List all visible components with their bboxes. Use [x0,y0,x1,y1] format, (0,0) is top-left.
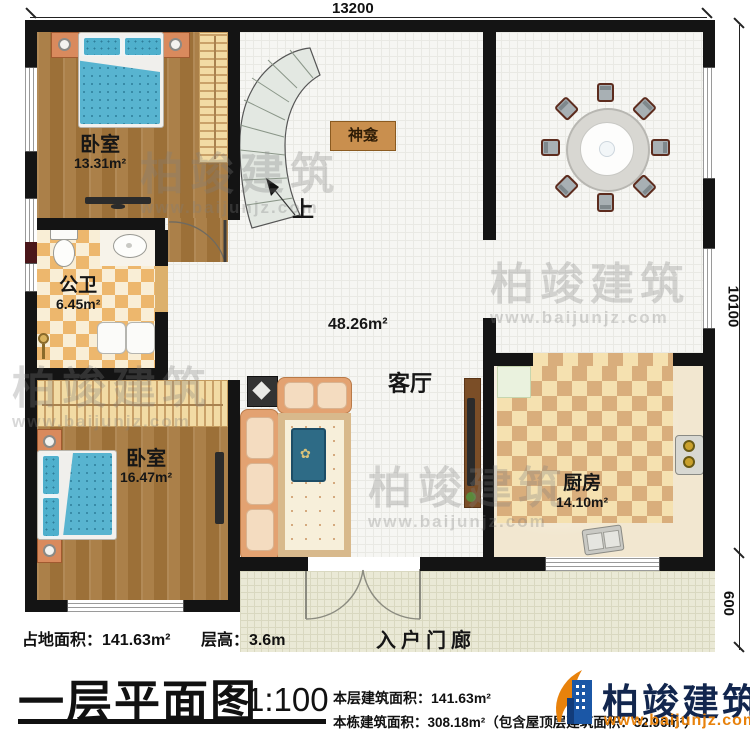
living-area: 48.26m² [328,316,388,334]
nightstand [162,32,190,58]
stove [675,435,704,475]
pillow [41,496,61,538]
wall-living-bottom-a [228,557,308,571]
wardrobe [199,32,228,163]
wall-dining-left-upper [483,32,496,240]
nightstand [37,538,62,563]
cutting-board [497,366,531,398]
stairs-up-label: 上 [292,198,314,222]
dining-chair [651,139,670,156]
kitchen-door-opening-floor [533,353,673,366]
shower-head [38,333,49,344]
living-name: 客厅 [388,372,432,396]
wall-kitchen-top-b [673,353,715,366]
wall-top [25,20,715,32]
wardrobe-rod [214,36,216,160]
dimension-right-upper: 10100 [724,286,741,328]
floor-area-line: 本层建筑面积：141.63m² [333,688,491,708]
bathroom-sink-drain [126,243,132,248]
sofa-top [277,377,352,414]
flowers-icon: ✿ [300,446,311,462]
dimension-top-line [30,17,707,18]
burner-icon [683,440,695,452]
window-bedroom1-left [25,67,37,152]
tv [467,398,475,486]
plant-icon [466,492,476,502]
entry-double-door [303,569,423,627]
window-kitchen-bottom [545,557,660,571]
nightstand [51,32,79,58]
floor-plan-page: 上 神龛 卧室 13.31m² 公卫 6.45m [0,0,750,740]
bathroom-door [155,266,168,312]
window-hall-right [703,248,715,329]
tv-cabinet [85,197,151,204]
window-bedroom2-bottom [67,600,184,612]
bathroom-area: 6.45m² [56,297,100,312]
shower-stem [42,344,45,359]
kitchen-sink [581,524,624,555]
wall-pier-dark [25,242,37,263]
wall-bathroom-bottom [37,368,168,380]
bedroom2-label: 卧室 16.47m² [120,448,172,485]
dimension-right-lower-line [739,557,740,650]
wall-kitchen-left [483,366,494,557]
wall-bedroom2-right [228,380,240,612]
window-dining-right [703,67,715,179]
sofa-left [240,409,279,561]
dining-chair [597,193,614,212]
dining-chair [597,83,614,102]
tv [111,204,125,209]
washing-machine [126,322,155,354]
bedroom1-label: 卧室 13.31m² [74,134,126,171]
wall-kitchen-top-a [494,353,533,366]
washing-machine [97,322,126,354]
kitchen-area: 14.10m² [556,495,608,510]
shrine-label: 神龛 [348,128,378,145]
porch-label: 入户门廊 [376,630,476,652]
floor-height: 层高：3.6m [201,632,285,649]
wall-bedroom1-right [228,32,240,220]
tv [215,452,224,524]
plan-scale: 1:100 [246,681,329,719]
bedroom1-area: 13.31m² [74,156,126,171]
land-area: 占地面积：141.63m² [22,632,171,649]
window-bathroom-left-b [25,263,37,292]
bedroom2-name: 卧室 [126,448,166,470]
wardrobe [37,380,228,427]
shrine-cabinet: 神龛 [330,121,396,151]
burner-icon [683,456,695,468]
pillow [41,454,61,496]
brand-logo-icon [552,668,598,728]
lamp-icon [43,435,56,448]
staircase [235,40,335,235]
title-underline [18,719,326,724]
toilet-bowl [53,239,75,267]
wall-bedroom1-bottom [37,218,165,230]
pillow [82,36,122,57]
kitchen-label: 厨房 14.10m² [556,474,608,510]
lamp-icon [58,38,71,51]
dimension-top: 13200 [332,0,374,17]
coffee-table: ✿ [291,428,326,482]
dining-chair [541,139,560,156]
brand-url: www.baijunjz.com [604,712,750,730]
kitchen-name: 厨房 [563,473,601,494]
bedroom1-name: 卧室 [80,134,120,156]
bedroom1-door-arc [167,220,227,264]
bedroom2-area: 16.47m² [120,470,172,485]
wardrobe-rod [42,404,223,406]
pillow [123,36,163,57]
dining-table-center [599,141,615,157]
window-bathroom-left-a [25,198,37,244]
bathroom-name: 公卫 [59,275,97,296]
dimension-right-lower: 600 [720,591,737,616]
bathroom-label: 公卫 6.45m² [56,276,100,312]
lamp-icon [43,544,56,557]
lamp-icon [169,38,182,51]
land-area-line: 占地面积：141.63m² 层高：3.6m [22,626,285,650]
